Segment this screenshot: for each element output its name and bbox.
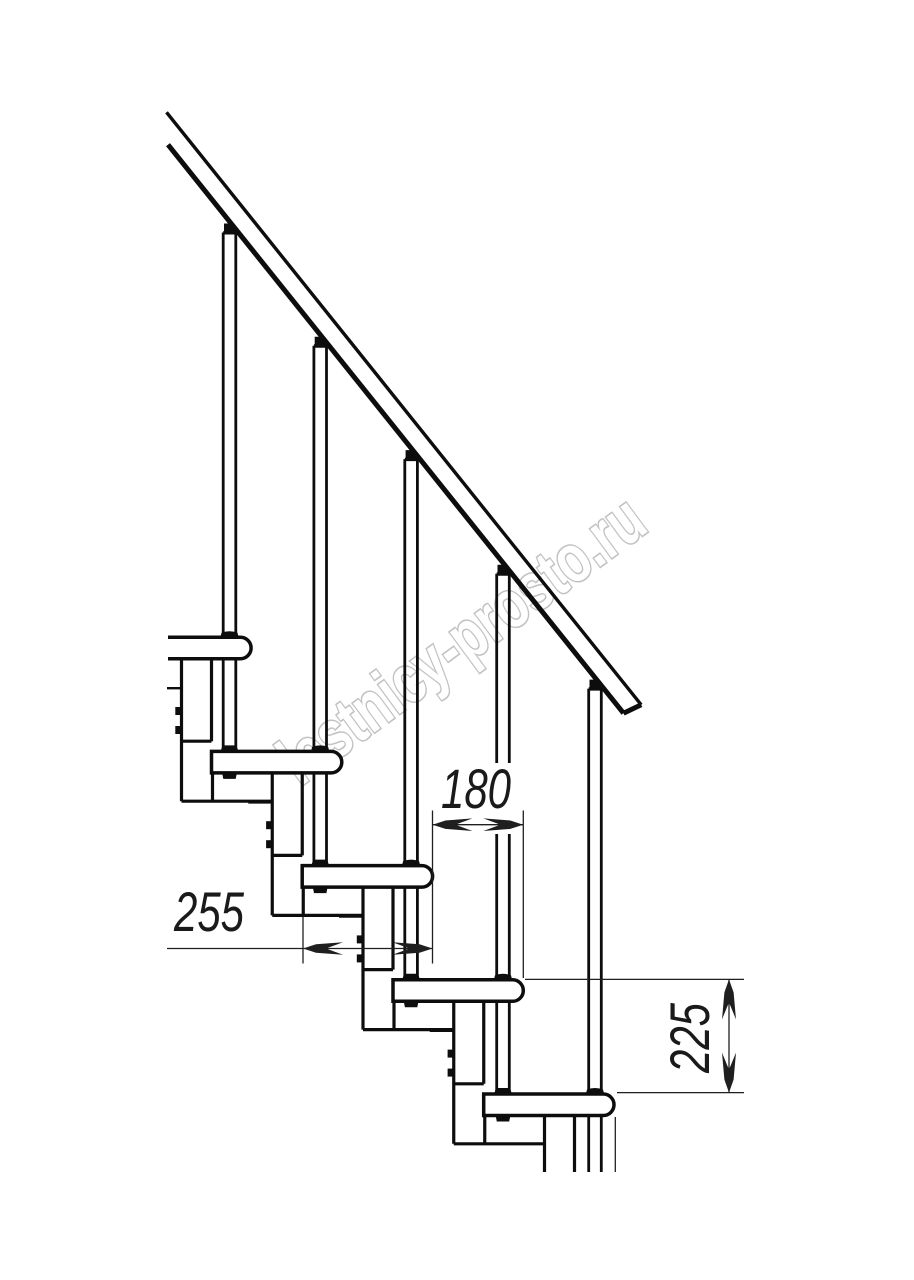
svg-text:255: 255 [173,881,244,943]
svg-text:180: 180 [441,758,511,820]
svg-text:225: 225 [659,1003,721,1074]
